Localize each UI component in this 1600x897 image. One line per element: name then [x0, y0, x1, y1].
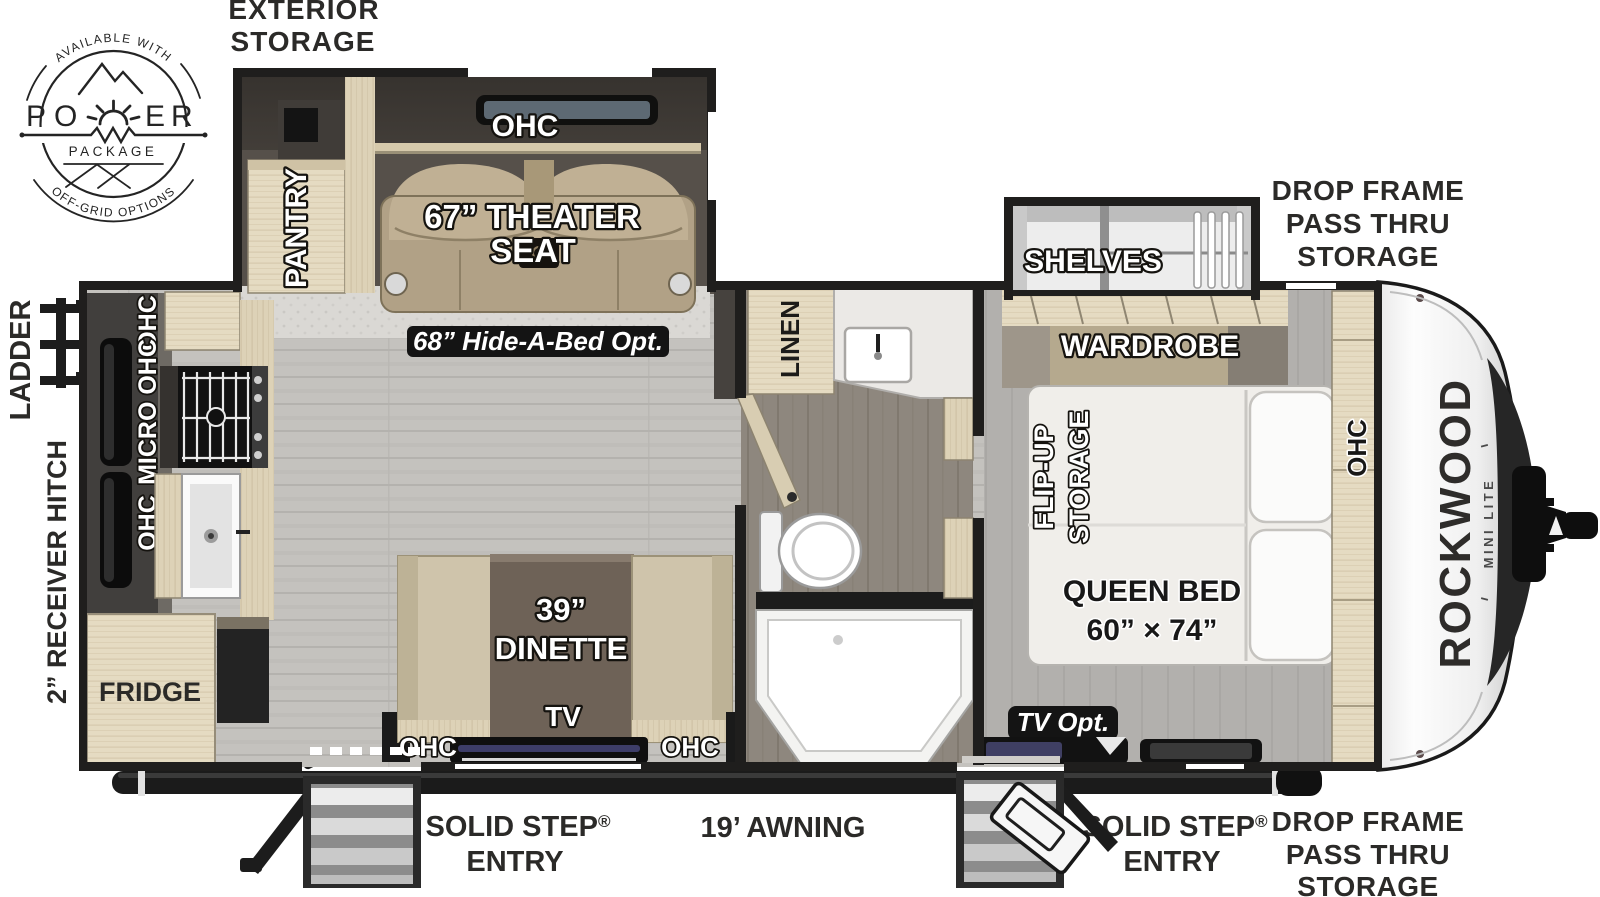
svg-text:LINEN: LINEN: [775, 300, 805, 378]
svg-text:39”: 39”: [536, 592, 586, 627]
svg-text:60” × 74”: 60” × 74”: [1087, 614, 1218, 647]
svg-text:WARDROBE: WARDROBE: [1061, 330, 1239, 363]
svg-text:PANTRY: PANTRY: [280, 168, 313, 288]
svg-text:STORAGE: STORAGE: [1297, 241, 1438, 272]
svg-text:SEAT: SEAT: [490, 232, 576, 269]
svg-text:TV Opt.: TV Opt.: [1017, 707, 1109, 737]
svg-text:SHELVES: SHELVES: [1024, 245, 1162, 278]
svg-text:DROP FRAME: DROP FRAME: [1272, 175, 1465, 206]
svg-text:TV: TV: [545, 701, 581, 732]
svg-text:LADDER: LADDER: [5, 300, 37, 421]
svg-text:MINI LITE: MINI LITE: [1481, 478, 1496, 569]
svg-text:MICRO OHC: MICRO OHC: [134, 339, 162, 485]
svg-text:DINETTE: DINETTE: [495, 631, 628, 666]
svg-text:E: E: [145, 100, 165, 133]
svg-text:68” Hide-A-Bed Opt.: 68” Hide-A-Bed Opt.: [413, 326, 663, 356]
svg-text:PASS THRU: PASS THRU: [1286, 208, 1450, 239]
svg-text:PACKAGE: PACKAGE: [69, 144, 158, 159]
svg-text:PASS THRU: PASS THRU: [1286, 839, 1450, 870]
svg-text:2” RECEIVER HITCH: 2” RECEIVER HITCH: [42, 440, 72, 704]
svg-text:STORAGE: STORAGE: [1297, 871, 1438, 897]
svg-text:EXTERIOR: EXTERIOR: [228, 0, 379, 25]
svg-text:STORAGE: STORAGE: [231, 26, 376, 57]
svg-text:STORAGE: STORAGE: [1064, 410, 1094, 543]
svg-text:OHC: OHC: [661, 732, 719, 762]
svg-text:SOLID STEP®: SOLID STEP®: [426, 811, 611, 843]
svg-text:P: P: [26, 100, 46, 133]
svg-text:ENTRY: ENTRY: [466, 846, 563, 878]
svg-text:ROCKWOOD: ROCKWOOD: [1431, 377, 1480, 668]
svg-text:67” THEATER: 67” THEATER: [424, 198, 640, 235]
svg-text:FLIP-UP: FLIP-UP: [1029, 425, 1059, 530]
svg-text:OHC: OHC: [492, 110, 559, 143]
svg-text:R: R: [171, 100, 193, 133]
svg-text:OHC: OHC: [1342, 419, 1372, 477]
svg-text:QUEEN BED: QUEEN BED: [1063, 575, 1241, 608]
svg-text:FRIDGE: FRIDGE: [99, 677, 201, 707]
svg-text:DROP FRAME: DROP FRAME: [1272, 806, 1465, 837]
svg-text:OHC: OHC: [399, 732, 457, 762]
svg-text:ENTRY: ENTRY: [1123, 846, 1220, 878]
svg-text:19’ AWNING: 19’ AWNING: [701, 812, 866, 844]
svg-text:O: O: [54, 100, 77, 133]
